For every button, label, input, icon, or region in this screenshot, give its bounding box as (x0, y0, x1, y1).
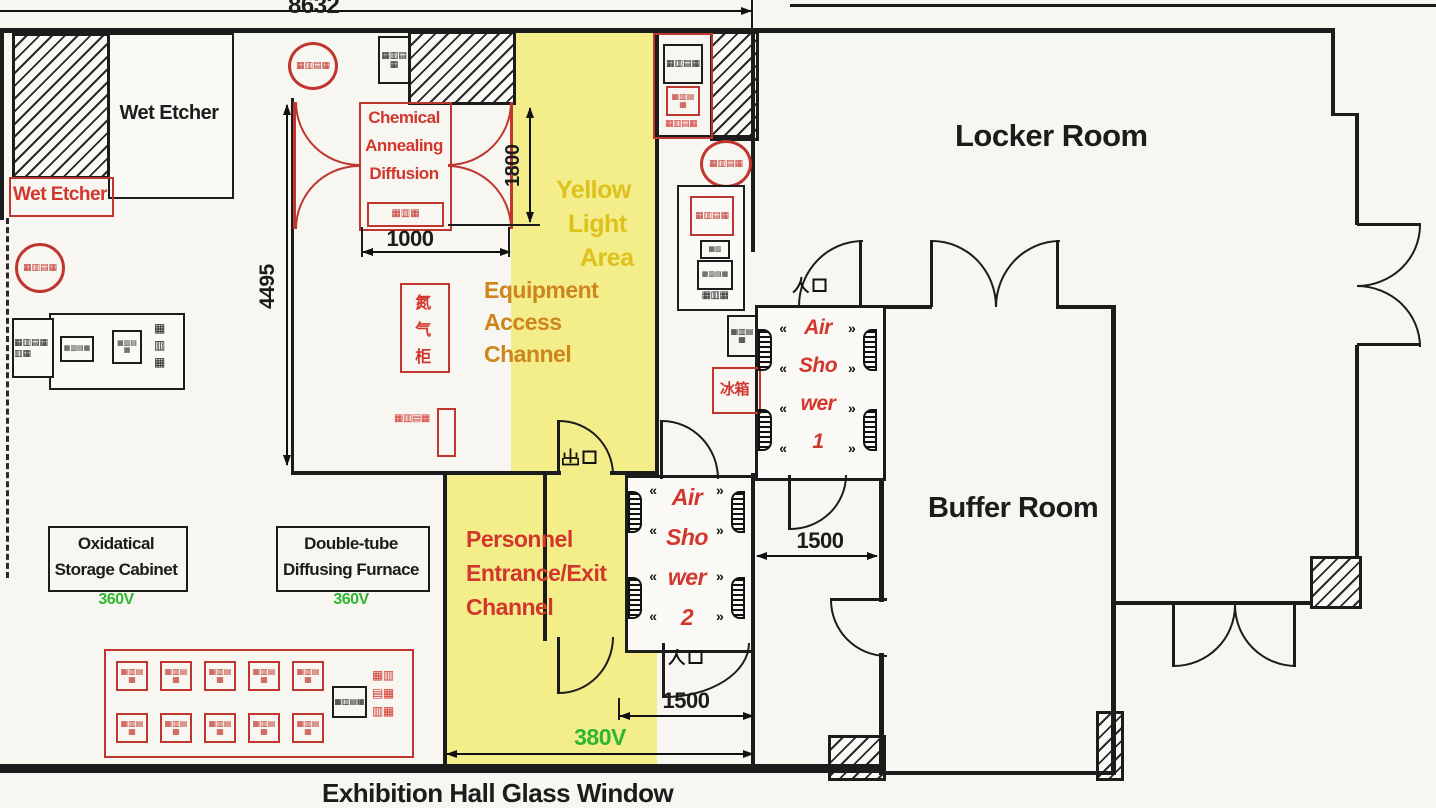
cleanroom-floor-plan: Wet Etcher Wet Etcher ▦▥▤▦ ▦▥▤▦▥▦ ▦▥▤▦ ▦… (0, 0, 1436, 808)
equipment-channel-label-3: Channel (484, 341, 604, 368)
personnel-channel-label-3: Channel (466, 594, 606, 621)
cjk-enter-glyph (792, 276, 809, 294)
shower2-nozzle-rt (715, 486, 745, 534)
seal-stamp-chem: ▦▥▤▦ (288, 42, 338, 90)
gr id-stamp-r1c4: ▦▥▤▦ (248, 661, 280, 691)
cjk-enter-glyph (668, 648, 685, 666)
nitrogen-cabinet-char-1: 氮 (402, 289, 444, 313)
buffer-top-door-arc-l (932, 240, 997, 307)
equipment-channel-label-2: Access (484, 309, 604, 336)
nozzle-icon (731, 577, 745, 619)
entrance-label-1 (792, 276, 827, 294)
dim-entrance (620, 715, 753, 717)
dim-channel-voltage (447, 753, 753, 755)
shower2-nozzle-lt (628, 486, 658, 534)
shower2-nozzle-rb (715, 572, 745, 620)
grid-side-text: ▦▥▤▦▥▦ (372, 666, 402, 728)
corridor-panel-caption: ▦▥▤▦ (653, 118, 709, 129)
exhibition-window-bar (0, 764, 882, 773)
workbench-side-text: ▦▥▤▦▥▦ (14, 337, 52, 359)
wall-corridor-right-b (751, 138, 755, 252)
corridor-panel-stamp: ▦▥▤▦ (666, 86, 700, 116)
corridor-equipment-stamp: ▦▥▤▦ (690, 196, 734, 236)
double-tube-voltage: 360V (276, 591, 426, 609)
seal-stamp-left: ▦▥▤▦ (15, 243, 65, 293)
dim-chem-width-ext-l (361, 227, 363, 257)
yellow-area-label-1: Yellow (556, 176, 652, 205)
dim-overall-value: 8632 (288, 0, 398, 20)
locker-bottom-door-arc-l (1174, 605, 1236, 667)
nozzle-icon (758, 329, 772, 371)
grid-stamp-r2c1: ▦▥▤▦ (116, 713, 148, 743)
dim-left-height (286, 105, 288, 465)
chemical-door-arc-ul (295, 102, 359, 166)
grid-stamp-r1c1: ▦▥▤▦ (116, 661, 148, 691)
corridor-equipment-item-1: ▦▥ (700, 240, 730, 259)
chemical-door-arc-ll (295, 165, 359, 229)
wall-left-solid (0, 28, 4, 220)
buffer-left-door-arc (830, 600, 887, 657)
oxidatical-label-1: Oxidatical (48, 534, 184, 554)
double-tube-label-1: Double-tube (276, 534, 426, 554)
chemical-room-label-2: Annealing (361, 136, 447, 156)
wall-buffer-left-lower (879, 653, 884, 773)
nozzle-icon (863, 329, 877, 371)
hatch-block-top-center (408, 31, 516, 105)
chemical-room-label-3: Diffusion (361, 164, 447, 184)
shower1-nozzle-lt (758, 324, 788, 372)
dim-entrance-ext (618, 698, 620, 720)
workbench-item-1: ▦▥▤▦ (60, 336, 94, 362)
chemical-door-jamb-left (293, 102, 296, 229)
dim-left-height-value: 4495 (256, 242, 280, 332)
wall-top-right-edge (790, 4, 1436, 7)
air-shower-2-label-4: 2 (660, 604, 714, 631)
cjk-mouth-glyph (688, 648, 703, 666)
dim-corridor (757, 555, 877, 557)
dim-chem-width-ext-r (508, 227, 510, 257)
shower1-nozzle-lb (758, 404, 788, 452)
seal-stamp-corridor: ▦▥▤▦ (700, 140, 752, 188)
grid-stamp-r1c2: ▦▥▤▦ (160, 661, 192, 691)
hatch-column-locker-corner (1310, 556, 1362, 609)
wall-mid-horizontal-a (291, 471, 561, 475)
entrance-label-2 (668, 648, 703, 666)
workbench-side-box: ▦▥▤▦▥▦ (12, 318, 54, 378)
cjk-mouth-glyph (582, 448, 597, 466)
wet-etcher-label: Wet Etcher (116, 102, 222, 125)
nitrogen-cabinet-char-2: 气 (402, 316, 444, 340)
wet-etcher-red-label: Wet Etcher (12, 184, 108, 206)
channel-voltage-value: 380V (562, 724, 638, 751)
workbench-item-2: ▦▥▤▦ (112, 330, 142, 364)
oxidatical-voltage: 360V (48, 591, 184, 609)
yellow-area-label-2: Light (568, 210, 648, 239)
dim-chem-height (529, 108, 531, 222)
exhibition-window-label: Exhibition Hall Glass Window (322, 778, 742, 808)
nitrogen-cabinet-char-3: 柜 (402, 343, 444, 367)
wall-left-dashed (6, 218, 9, 578)
wall-buffer-top-a (884, 305, 932, 309)
shower2-nozzle-lb (628, 572, 658, 620)
air-shower-1-label-2: Sho (792, 354, 844, 378)
dim-chem-width-value: 1000 (370, 226, 450, 252)
grid-stamp-r2c5: ▦▥▤▦ (292, 713, 324, 743)
chemical-room-label-1: Chemical (361, 108, 447, 128)
workbench-right-text: ▦▥▦ (154, 320, 171, 380)
shower1-exit-door-arc (790, 475, 847, 530)
cjk-mouth-glyph (812, 276, 827, 294)
personnel-channel-label-1: Personnel (466, 526, 606, 553)
dim-chem-bottom-tick (448, 224, 540, 226)
wall-locker-right-upper (1355, 113, 1359, 225)
air-shower-2-label-1: Air (660, 484, 714, 511)
nozzle-icon (731, 491, 745, 533)
grid-stamp-r1c5: ▦▥▤▦ (292, 661, 324, 691)
grid-black-box: ▦▥▤▦ (332, 686, 367, 718)
air-shower-1-label-3: wer (792, 392, 844, 416)
wall-corridor-right-a (751, 28, 755, 138)
nozzle-icon (628, 491, 642, 533)
wall-buffer-bottom (879, 771, 1116, 775)
hatch-block-window-end (828, 735, 886, 781)
box-above-refrigerator: ▦▥▤▦ (727, 315, 757, 357)
cjk-exit-glyph (562, 448, 579, 466)
refrigerator-label: 冰箱 (713, 378, 756, 399)
shower1-nozzle-rt (847, 324, 877, 372)
shower1-nozzle-rb (847, 404, 877, 452)
grid-stamp-r1c3: ▦▥▤▦ (204, 661, 236, 691)
dim-corridor-value: 1500 (782, 528, 858, 554)
air-shower-2-label-2: Sho (660, 524, 714, 551)
locker-room-title: Locker Room (955, 118, 1185, 154)
air-shower-2-label-3: wer (660, 564, 714, 591)
panel-box-top: ▦▥▤▦ (378, 36, 410, 84)
wall-locker-right-lower (1355, 345, 1359, 558)
yellow-area-label-3: Area (580, 244, 650, 273)
chemical-sub-box: ▦▥▦ (367, 202, 444, 227)
buffer-top-door-arc-r (995, 240, 1060, 307)
locker-right-door-arc-u (1357, 225, 1421, 287)
corridor-panel-box: ▦▥▤▦ (663, 44, 703, 84)
grid-stamp-r2c3: ▦▥▤▦ (204, 713, 236, 743)
outlet-label: ▦▥▤▦ (394, 412, 434, 425)
corridor-equipment-caption: ▦▥▦ (693, 290, 737, 301)
wall-buffer-right (1111, 305, 1116, 775)
personnel-channel-label-2: Entrance/Exit (466, 560, 616, 587)
oxidatical-label-2: Storage Cabinet (44, 560, 188, 580)
grid-stamp-r2c2: ▦▥▤▦ (160, 713, 192, 743)
exit-label (562, 448, 597, 466)
hatch-block-top-left (12, 33, 110, 179)
nozzle-icon (863, 409, 877, 451)
grid-stamp-r2c4: ▦▥▤▦ (248, 713, 280, 743)
equipment-channel-label-1: Equipment (484, 277, 604, 304)
air-shower-1-label-4: 1 (792, 430, 844, 454)
dim-entrance-value: 1500 (648, 688, 724, 714)
double-tube-label-2: Diffusing Furnace (270, 560, 432, 580)
air-shower-1-label-1: Air (792, 316, 844, 340)
nozzle-icon (628, 577, 642, 619)
wall-locker-step-v (1331, 28, 1335, 116)
locker-right-door-arc-d (1357, 285, 1421, 347)
shower1-entry-door-arc (798, 240, 863, 306)
nozzle-icon (758, 409, 772, 451)
wall-channel-left (443, 473, 447, 768)
buffer-room-title: Buffer Room (928, 492, 1128, 525)
dim-chem-height-value: 1800 (502, 128, 526, 204)
outlet-marker (437, 408, 456, 457)
corridor-door-arc (662, 420, 719, 479)
corridor-equipment-item-2: ▦▥▤▦ (697, 260, 733, 290)
wall-buffer-top-b (1056, 305, 1113, 309)
locker-bottom-door-arc-r (1234, 605, 1296, 667)
